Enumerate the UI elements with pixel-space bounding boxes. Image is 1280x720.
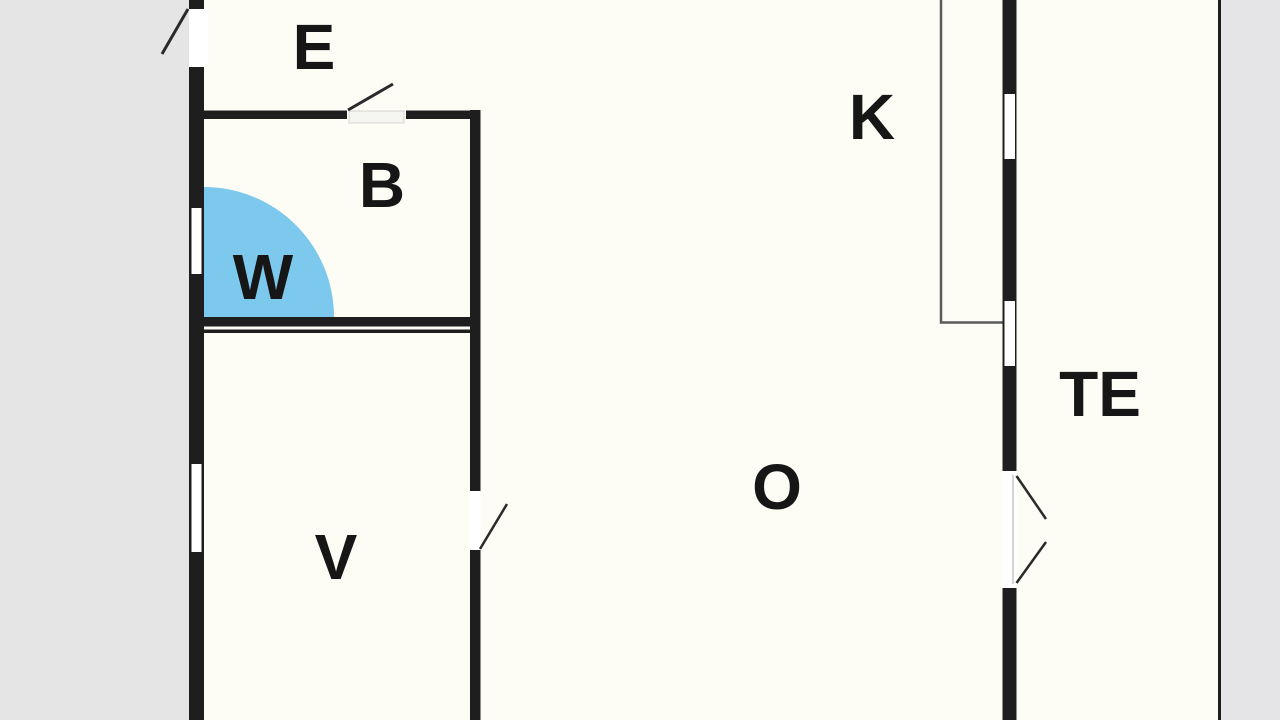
svg-text:TE: TE <box>1059 358 1141 430</box>
svg-text:K: K <box>849 81 895 153</box>
svg-text:W: W <box>233 241 294 313</box>
svg-text:O: O <box>752 451 802 523</box>
svg-text:E: E <box>293 11 336 83</box>
svg-text:V: V <box>315 521 358 593</box>
svg-text:B: B <box>359 149 405 221</box>
